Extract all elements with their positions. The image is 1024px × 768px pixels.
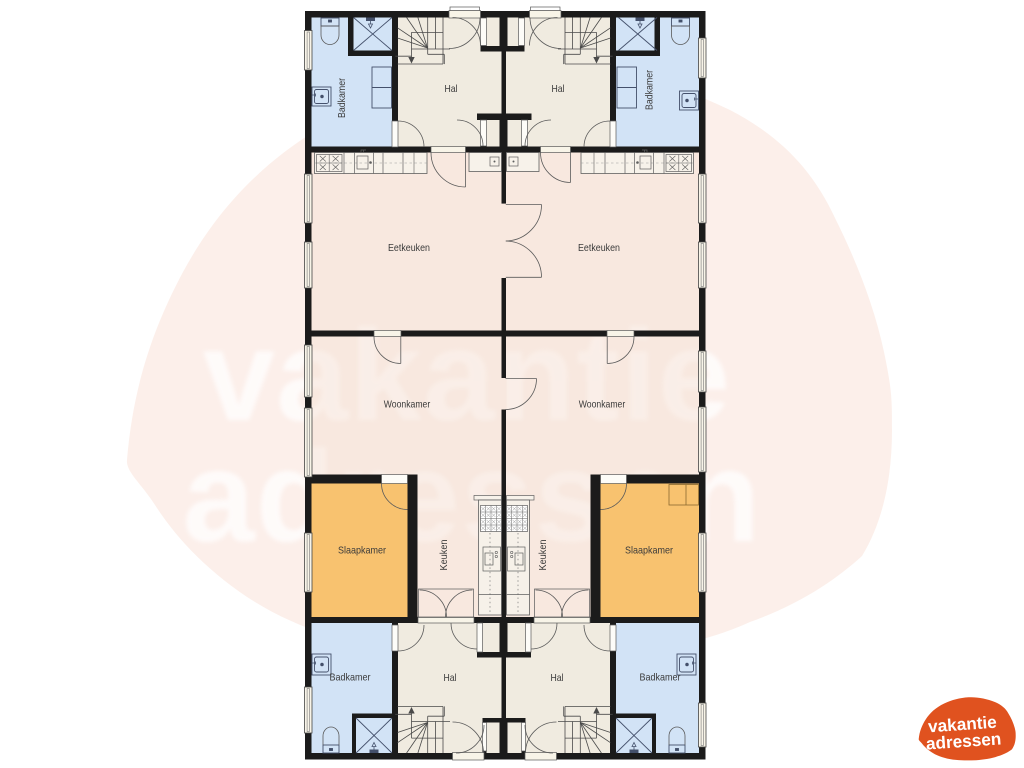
svg-text:Keuken: Keuken: [537, 539, 549, 570]
svg-text:Slaapkamer: Slaapkamer: [338, 545, 386, 557]
svg-text:Badkamer: Badkamer: [330, 672, 371, 684]
svg-text:Hal: Hal: [551, 672, 564, 684]
svg-text:Badkamer: Badkamer: [336, 78, 348, 118]
svg-text:Badkamer: Badkamer: [640, 672, 681, 684]
svg-text:Keuken: Keuken: [438, 539, 450, 570]
svg-text:Eetkeuken: Eetkeuken: [578, 242, 620, 254]
svg-text:Hal: Hal: [445, 83, 458, 95]
svg-text:Badkamer: Badkamer: [644, 70, 656, 110]
svg-text:Woonkamer: Woonkamer: [579, 399, 626, 411]
svg-text:Hal: Hal: [552, 83, 565, 95]
svg-text:Eetkeuken: Eetkeuken: [388, 242, 430, 254]
svg-text:Hal: Hal: [444, 672, 457, 684]
svg-text:Woonkamer: Woonkamer: [384, 399, 431, 411]
svg-text:Slaapkamer: Slaapkamer: [625, 545, 673, 557]
